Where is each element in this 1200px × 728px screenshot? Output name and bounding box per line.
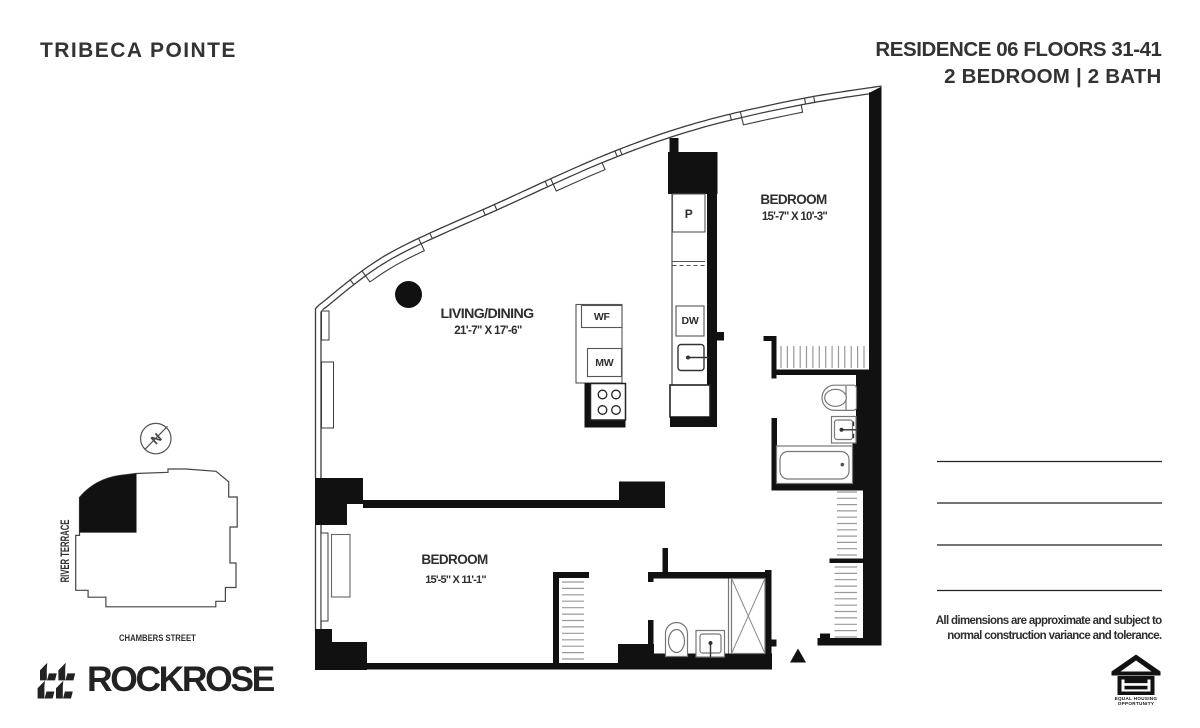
svg-text:N: N (148, 430, 165, 447)
